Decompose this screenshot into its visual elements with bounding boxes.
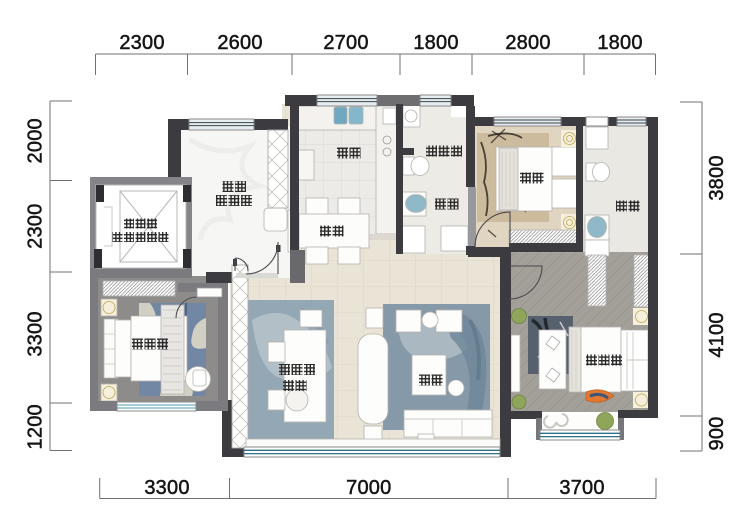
svg-text:1800: 1800 bbox=[413, 32, 458, 54]
svg-text:3800: 3800 bbox=[706, 155, 728, 200]
svg-text:2000: 2000 bbox=[25, 118, 47, 163]
svg-text:3700: 3700 bbox=[559, 477, 604, 499]
svg-text:1200: 1200 bbox=[25, 404, 47, 449]
svg-text:2600: 2600 bbox=[217, 32, 262, 54]
svg-text:4100: 4100 bbox=[706, 312, 728, 357]
svg-text:7000: 7000 bbox=[346, 477, 391, 499]
svg-text:3300: 3300 bbox=[144, 477, 189, 499]
svg-text:3300: 3300 bbox=[25, 311, 47, 356]
svg-text:1800: 1800 bbox=[597, 32, 642, 54]
svg-text:2800: 2800 bbox=[505, 32, 550, 54]
svg-text:2300: 2300 bbox=[25, 204, 47, 249]
svg-text:900: 900 bbox=[706, 417, 728, 451]
svg-text:2300: 2300 bbox=[119, 32, 164, 54]
svg-text:2700: 2700 bbox=[323, 32, 368, 54]
